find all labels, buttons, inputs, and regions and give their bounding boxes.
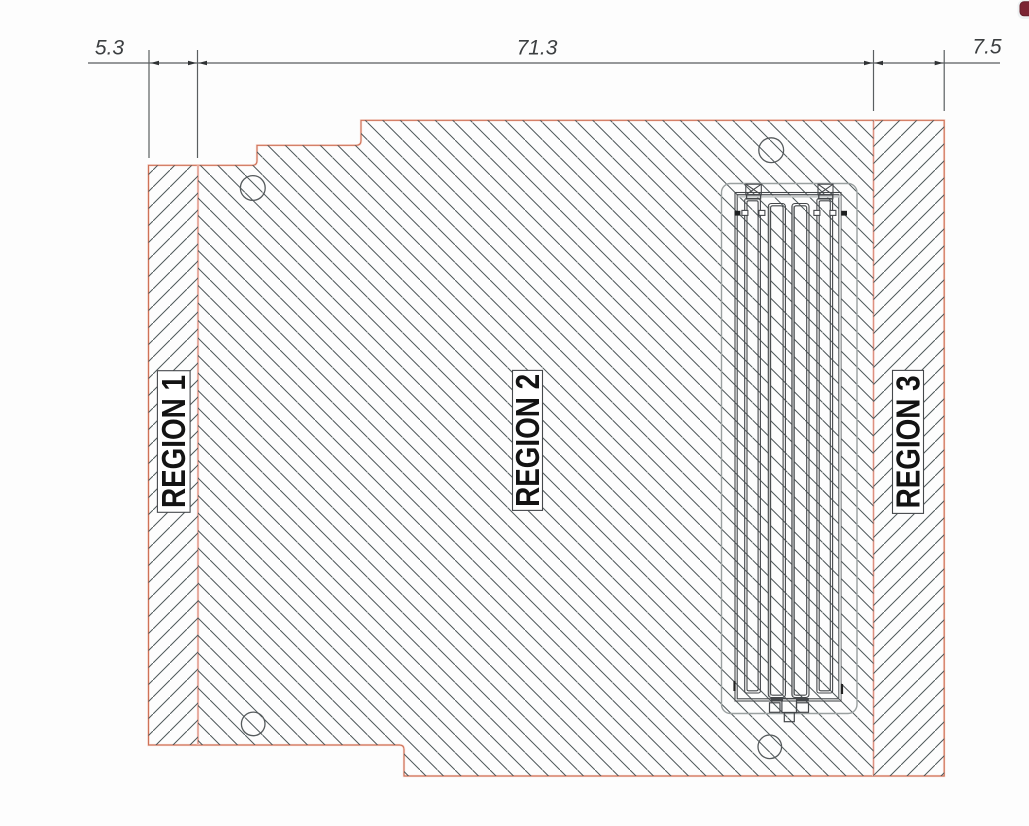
svg-text:REGION 2: REGION 2 (509, 374, 546, 507)
svg-text:REGION 1: REGION 1 (155, 375, 192, 508)
svg-text:7.5: 7.5 (972, 36, 1002, 59)
svg-text:71.3: 71.3 (517, 37, 558, 60)
svg-text:5.3: 5.3 (95, 37, 125, 60)
svg-text:REGION 3: REGION 3 (890, 375, 927, 508)
